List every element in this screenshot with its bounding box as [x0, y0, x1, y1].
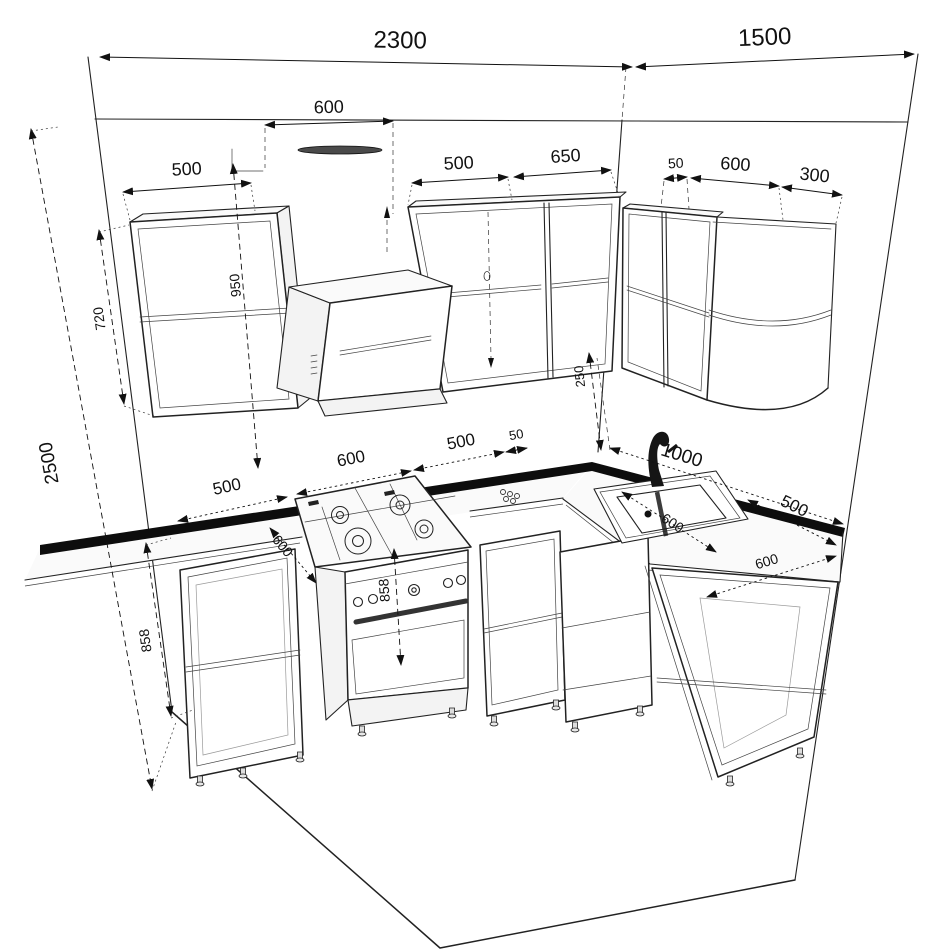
- dim-label-500-base-left: 500: [211, 474, 243, 498]
- corner-extension: [622, 67, 626, 120]
- dim-label-858-left: 858: [135, 628, 154, 654]
- dim-label-858-oven: 858: [375, 578, 393, 603]
- dim-label-300: 300: [799, 164, 831, 187]
- dim-label-500-wall-mid: 500: [443, 152, 474, 174]
- dim-label-720: 720: [89, 306, 108, 332]
- dim-label-1000: 1000: [658, 440, 705, 472]
- base-cabinet-right: [645, 566, 838, 786]
- base-cabinet-mid: [480, 531, 565, 726]
- oven-front: [345, 550, 468, 700]
- dim-label-50-base: 50: [508, 426, 525, 443]
- dim-wall-gap: 50: [661, 155, 689, 209]
- dim-wall-cab-mid2: 650: [514, 145, 619, 196]
- sink-cabinet-front: [560, 536, 652, 722]
- dim-label-2500: 2500: [36, 440, 64, 485]
- corner-unit-edges: [717, 217, 836, 388]
- cooker-side: [315, 567, 348, 720]
- wall-cabinet-right-group: [622, 204, 836, 410]
- dim-label-2300: 2300: [373, 27, 427, 55]
- dim-label-50-wall: 50: [668, 155, 685, 172]
- dim-label-250: 250: [571, 365, 588, 388]
- ceiling-wall-line: [95, 119, 908, 122]
- cooker: [295, 476, 471, 736]
- dim-room-width-right: 1500: [636, 23, 914, 67]
- sink-drain: [645, 511, 652, 518]
- base-cabinet-mid-front: [480, 531, 565, 716]
- dim-label-600-hood: 600: [313, 96, 344, 117]
- sink-base-cabinet: [560, 536, 652, 732]
- kitchen-drawing-page: 2300 1500 600 500 500 650: [0, 0, 934, 952]
- wall-step-line: [232, 149, 263, 171]
- corner-unit-shelf-curve: [709, 310, 831, 326]
- dim-label-1500: 1500: [737, 23, 792, 52]
- base-cabinet-right-front: [652, 568, 838, 777]
- dim-label-500-wall-left: 500: [171, 158, 202, 180]
- base-cabinet-left: [180, 549, 304, 786]
- dim-label-600-cooker: 600: [335, 447, 366, 471]
- dim-wall-cab-corner: 300: [782, 164, 842, 223]
- corner-unit-bottom-curve: [707, 388, 828, 410]
- dim-label-950: 950: [226, 273, 244, 298]
- dim-label-600-wall-right: 600: [720, 153, 751, 175]
- kitchen-perspective-drawing: 2300 1500 600 500 500 650: [0, 0, 934, 952]
- dim-room-width-left: 2300: [100, 27, 632, 67]
- dim-label-500-base-mid: 500: [445, 430, 476, 454]
- dim-label-650: 650: [550, 145, 581, 167]
- wall-cabinet-left-front: [130, 213, 298, 417]
- dim-hood-clearance: 600: [265, 96, 393, 214]
- ceiling-vent-lens: [298, 146, 382, 154]
- dim-base-gap: 50: [506, 426, 527, 452]
- hood-extension-arrow: [384, 206, 390, 218]
- dim-base-cab-mid: 500: [414, 430, 504, 470]
